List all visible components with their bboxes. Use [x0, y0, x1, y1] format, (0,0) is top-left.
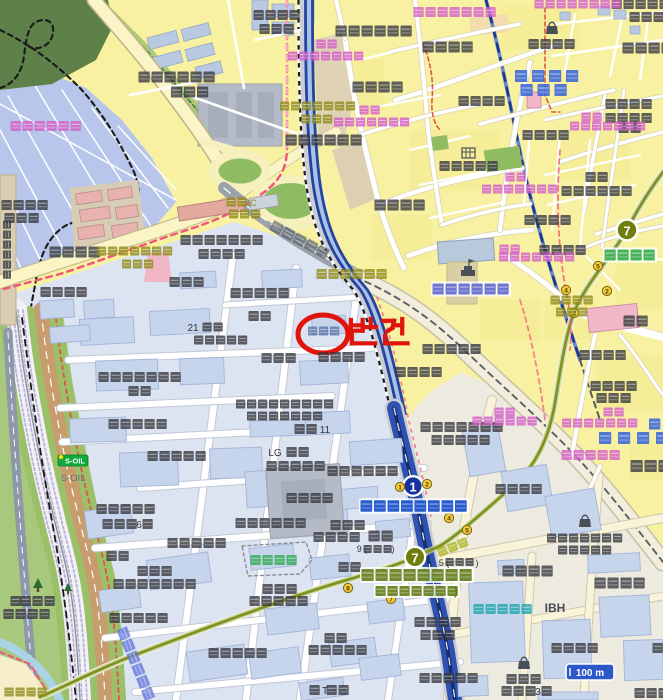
svg-text:8: 8 [346, 586, 350, 593]
svg-text:1: 1 [398, 485, 402, 492]
svg-text:7: 7 [623, 224, 630, 239]
svg-text:5: 5 [596, 264, 600, 271]
svg-text:): ) [476, 558, 479, 568]
svg-text:2: 2 [605, 289, 609, 296]
svg-text:IC: IC [248, 198, 258, 208]
svg-text:11: 11 [320, 425, 331, 436]
svg-text:6: 6 [136, 520, 142, 531]
svg-text:7: 7 [411, 551, 418, 566]
svg-text:): ) [392, 544, 395, 554]
svg-text:21: 21 [187, 323, 199, 334]
svg-text:LG: LG [268, 448, 282, 459]
svg-text:IBH: IBH [545, 601, 566, 615]
svg-text:3: 3 [535, 687, 541, 698]
svg-text:4: 4 [564, 288, 568, 295]
svg-text:5: 5 [465, 528, 469, 535]
svg-text:2: 2 [425, 482, 429, 489]
svg-text:100 m: 100 m [576, 668, 604, 679]
svg-text:4: 4 [447, 516, 451, 523]
svg-text:): ) [454, 586, 458, 598]
svg-text:1: 1 [409, 480, 416, 495]
svg-text:S-OIL: S-OIL [65, 457, 85, 466]
svg-text:S-OIL: S-OIL [61, 473, 86, 484]
